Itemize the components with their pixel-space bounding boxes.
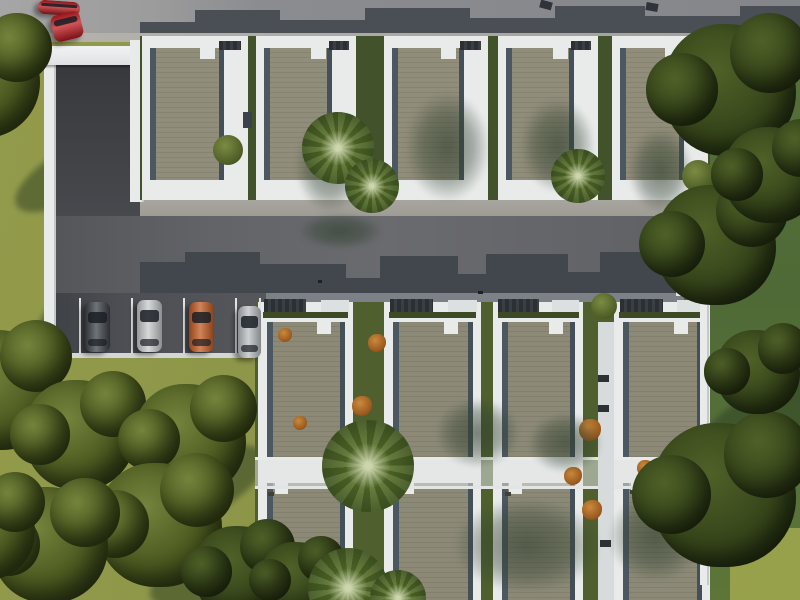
bird xyxy=(478,291,483,294)
carport-pergola xyxy=(498,299,539,313)
parking-stall-line xyxy=(79,298,81,354)
entry-pergola xyxy=(329,41,349,50)
parked-car-darkgray xyxy=(85,302,110,352)
bird xyxy=(318,280,322,283)
parked-car-silver xyxy=(137,300,162,352)
walkway-door xyxy=(598,375,609,382)
palm-shadow-on-roof xyxy=(435,398,520,468)
wall-window xyxy=(243,112,252,128)
backyard-strip xyxy=(263,312,349,318)
walkway-door xyxy=(600,540,611,547)
windshield xyxy=(192,312,211,323)
sidewalk-mid xyxy=(140,200,684,216)
entrance-gate-beam xyxy=(42,46,144,65)
parapet-notch xyxy=(553,38,568,59)
canopy-tree xyxy=(724,127,800,223)
small-tree xyxy=(591,293,617,319)
entry-pad xyxy=(552,300,579,312)
parapet-notch xyxy=(311,38,326,59)
rear-window xyxy=(88,339,107,346)
palm-shadow-on-roof xyxy=(405,92,490,202)
palm-shadow-on-roof xyxy=(298,213,383,249)
parapet-notch xyxy=(441,38,456,59)
canopy-tree xyxy=(0,22,40,138)
rear-window xyxy=(192,339,211,346)
aerial-render xyxy=(0,0,800,600)
palm-shadow-on-roof xyxy=(452,498,602,593)
parapet-notch xyxy=(444,318,458,334)
parked-car-orange xyxy=(189,302,214,352)
canopy-tree xyxy=(716,330,800,414)
entry-pad xyxy=(448,300,477,312)
walkway-door xyxy=(598,405,609,412)
carport-pergola xyxy=(264,299,307,313)
windshield xyxy=(53,16,78,28)
canopy-tree xyxy=(652,423,796,567)
roof-vent xyxy=(268,492,274,496)
parking-stall-line xyxy=(131,298,133,354)
entry-pergola xyxy=(571,41,591,50)
windshield xyxy=(88,312,107,323)
parked-car-silver-2 xyxy=(238,306,261,358)
backyard-strip xyxy=(619,312,705,318)
parapet-notch xyxy=(674,318,688,334)
flat-roof xyxy=(150,48,224,180)
palm-shadow-on-roof xyxy=(528,413,603,473)
parapet-notch xyxy=(200,38,215,59)
roof-vent xyxy=(505,492,511,496)
rear-window xyxy=(241,345,258,352)
windshield xyxy=(140,310,159,321)
entry-pergola xyxy=(219,41,240,50)
small-tree xyxy=(213,135,243,165)
windshield xyxy=(41,3,77,9)
house-unit-top-1 xyxy=(142,36,248,200)
carport-pergola xyxy=(620,299,663,313)
walkway-vertical xyxy=(598,322,614,600)
entry-pad xyxy=(321,300,350,312)
parapet-notch xyxy=(317,318,331,334)
boundary-wall-left xyxy=(44,46,56,360)
windshield xyxy=(241,316,258,327)
carport-pergola xyxy=(390,299,434,313)
parking-stall-line xyxy=(183,298,185,354)
backyard-strip xyxy=(389,312,476,318)
entry-pergola xyxy=(460,41,481,50)
parapet-notch xyxy=(549,318,563,334)
backyard-strip xyxy=(498,312,579,318)
rear-window xyxy=(140,339,159,346)
parking-stall-line xyxy=(235,298,237,354)
